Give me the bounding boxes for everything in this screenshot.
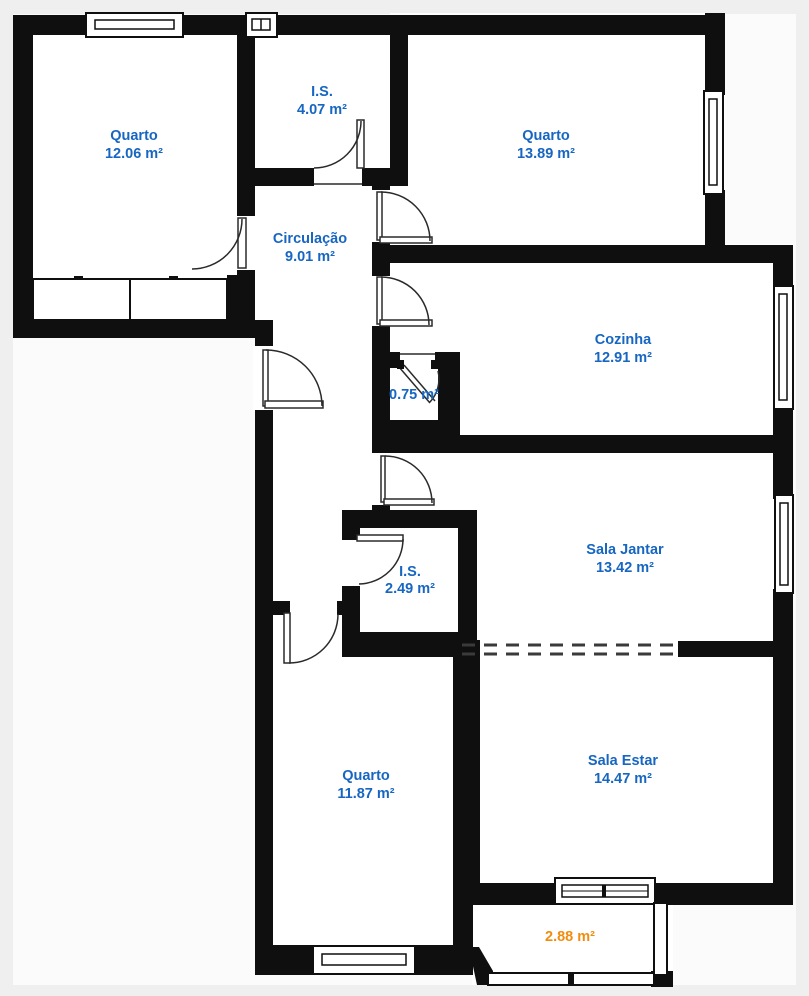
svg-text:Cozinha: Cozinha: [595, 332, 652, 348]
svg-text:I.S.: I.S.: [311, 84, 333, 100]
svg-text:0.75 m²: 0.75 m²: [389, 387, 439, 403]
svg-text:Quarto: Quarto: [522, 128, 570, 144]
svg-text:Sala Estar: Sala Estar: [588, 753, 658, 769]
svg-text:13.89 m²: 13.89 m²: [517, 146, 575, 162]
floor-plan: Quarto 12.06 m² I.S. 4.07 m² Quarto 13.8…: [0, 0, 809, 996]
svg-text:Sala Jantar: Sala Jantar: [586, 542, 664, 558]
window-sala-jantar: [775, 495, 793, 593]
window-sala-estar-balcony: [555, 878, 655, 904]
window-quarto-top-right: [704, 91, 723, 194]
svg-text:12.91 m²: 12.91 m²: [594, 350, 652, 366]
svg-text:2.49 m²: 2.49 m²: [385, 581, 435, 597]
room-label-varanda: 2.88 m²: [545, 929, 595, 945]
svg-text:2.88 m²: 2.88 m²: [545, 929, 595, 945]
svg-text:14.47 m²: 14.47 m²: [594, 771, 652, 787]
svg-text:Circulação: Circulação: [273, 231, 347, 247]
svg-text:Quarto: Quarto: [110, 128, 158, 144]
window-cozinha: [774, 286, 793, 409]
svg-text:9.01 m²: 9.01 m²: [285, 249, 335, 265]
svg-text:Quarto: Quarto: [342, 768, 390, 784]
svg-text:I.S.: I.S.: [399, 564, 421, 580]
window-quarto-top-left: [86, 13, 183, 37]
svg-text:12.06 m²: 12.06 m²: [105, 146, 163, 162]
svg-text:11.87 m²: 11.87 m²: [337, 786, 394, 802]
room-label-closet-small: 0.75 m²: [389, 387, 439, 403]
svg-text:13.42 m²: 13.42 m²: [596, 560, 654, 576]
floor-plan-drawing: Quarto 12.06 m² I.S. 4.07 m² Quarto 13.8…: [0, 0, 809, 996]
closet-quarto-top-left: [33, 276, 227, 320]
window-is-top: [246, 13, 277, 37]
svg-text:4.07 m²: 4.07 m²: [297, 102, 347, 118]
window-quarto-bottom: [313, 946, 415, 974]
